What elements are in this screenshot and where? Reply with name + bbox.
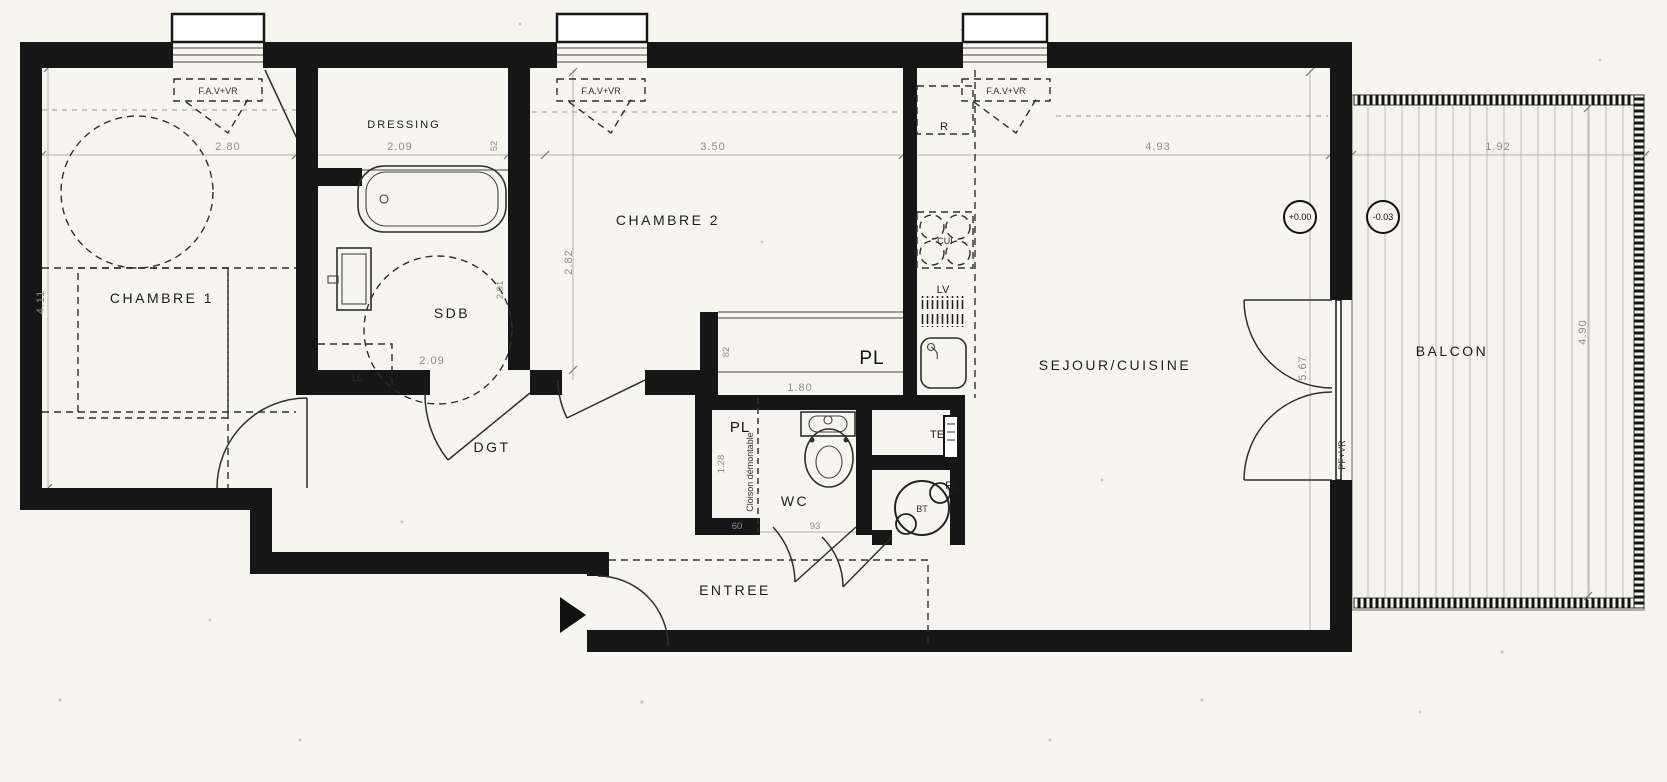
dim-chambre1-w: 2.80 bbox=[215, 141, 240, 153]
dim-chambre2-d: 2.82 bbox=[563, 249, 575, 274]
balcony-railing-top bbox=[1354, 95, 1634, 105]
dim-dressing-gap: 52 bbox=[489, 141, 500, 152]
label-electrical-panel: TE bbox=[930, 429, 944, 441]
label-sdb: SDB bbox=[434, 305, 470, 321]
dim-chambre1-d: 4.11 bbox=[35, 290, 47, 315]
label-fridge: R bbox=[940, 121, 948, 133]
label-entree: ENTREE bbox=[699, 582, 771, 598]
label-balcon: BALCON bbox=[1416, 343, 1489, 359]
shutter-box bbox=[963, 14, 1047, 42]
label-window2: F.A.V+VR bbox=[581, 86, 621, 96]
balcony-railing-bottom bbox=[1354, 598, 1634, 608]
dim-placard-w: 1.80 bbox=[787, 382, 812, 394]
floor-plan-page: +0.00 -0.03 CHAMBRE 1 DRESSING SDB CHAMB… bbox=[0, 0, 1667, 782]
level-interior-value: +0.00 bbox=[1289, 212, 1312, 222]
dim-balcon-d: 4.90 bbox=[1577, 319, 1589, 344]
shutter-box bbox=[557, 14, 647, 42]
dim-sdb-w: 2.09 bbox=[419, 355, 444, 367]
dishwasher-hatch bbox=[920, 296, 966, 309]
label-dressing: DRESSING bbox=[367, 119, 440, 131]
dim-sejour-d: 5.67 bbox=[1297, 355, 1309, 380]
label-hob: CUI bbox=[937, 236, 953, 246]
dim-entree-pl-d: 1.28 bbox=[716, 455, 727, 474]
dim-placard-d: 82 bbox=[721, 347, 732, 358]
label-placard-bt: PL bbox=[945, 480, 958, 492]
dishwasher-hatch bbox=[920, 314, 966, 327]
label-window3: F.A.V+VR bbox=[986, 86, 1026, 96]
dim-balcon-w: 1.92 bbox=[1485, 141, 1510, 153]
label-window1: F.A.V+VR bbox=[198, 86, 238, 96]
dim-chambre2-w: 3.50 bbox=[700, 141, 725, 153]
level-balcony-value: -0.03 bbox=[1373, 212, 1394, 222]
dim-sejour-w: 4.93 bbox=[1145, 141, 1170, 153]
balcony bbox=[1352, 95, 1644, 610]
dim-sdb-d: 2.01 bbox=[495, 281, 506, 300]
dim-wc-w: 93 bbox=[810, 521, 821, 532]
label-partition-note: Cloison démontable bbox=[745, 432, 755, 512]
label-balcony-door: PF+VR bbox=[1337, 440, 1347, 470]
label-washer: LL bbox=[352, 373, 362, 383]
dim-dressing-w: 2.09 bbox=[387, 141, 412, 153]
label-chambre2: CHAMBRE 2 bbox=[616, 212, 720, 228]
label-dgt: DGT bbox=[473, 439, 510, 455]
label-sejour: SEJOUR/CUISINE bbox=[1039, 357, 1191, 373]
label-chambre1: CHAMBRE 1 bbox=[110, 290, 214, 306]
label-wc: WC bbox=[781, 493, 809, 509]
floor-plan-drawing: +0.00 -0.03 CHAMBRE 1 DRESSING SDB CHAMB… bbox=[0, 0, 1667, 782]
label-dishwasher: LV bbox=[937, 284, 950, 296]
label-water-heater: BT bbox=[916, 504, 928, 514]
balcony-decking bbox=[1354, 105, 1634, 598]
dim-entree-pl-w: 60 bbox=[732, 521, 743, 532]
balcony-railing-right bbox=[1634, 95, 1644, 608]
shutter-box bbox=[172, 14, 264, 42]
label-placard-chambre2: PL bbox=[859, 348, 884, 369]
electrical-panel bbox=[944, 416, 958, 458]
